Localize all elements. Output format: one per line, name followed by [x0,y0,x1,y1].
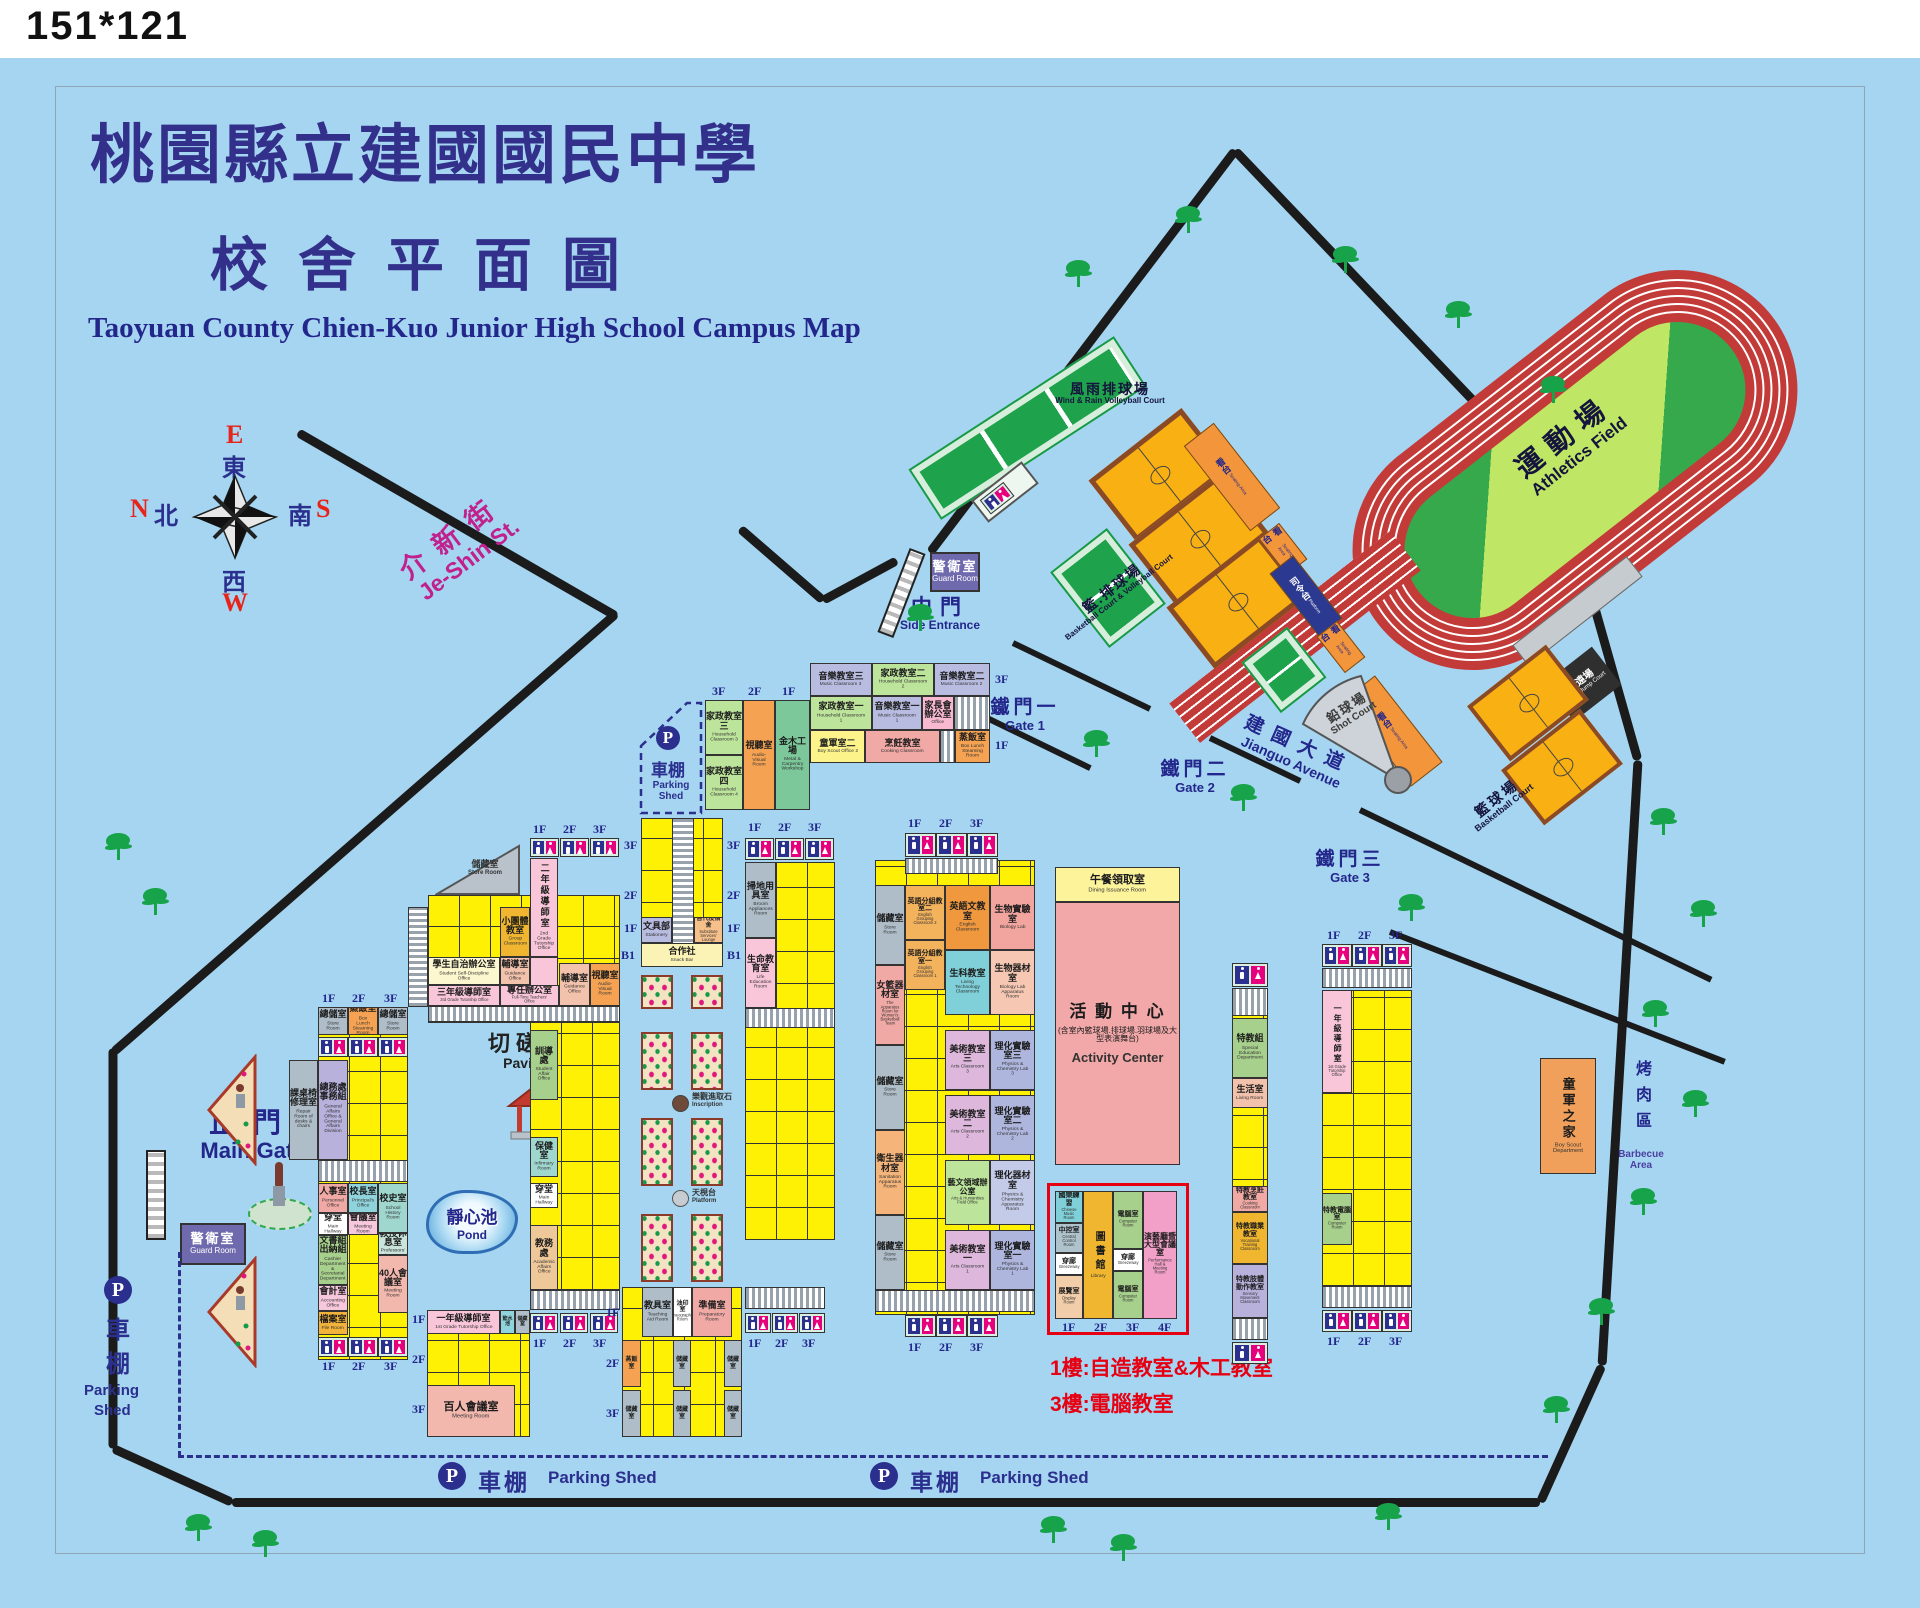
map-room: 特教組Special Education Department [1232,1018,1268,1078]
floor-label: 1F [322,1359,335,1374]
parking-label: 車棚 [651,756,685,781]
map-room: 百人會議室Meeting Room [427,1385,515,1437]
floor-label: 2F [939,816,952,831]
map-room: 檔案室File Room [318,1311,348,1335]
map-room: 儲藏室 [673,1390,691,1437]
map-room: 二年級導師室2nd Grade Tutorship Office [530,858,558,957]
map-room: 展覽室Display Room [1055,1275,1083,1319]
map-room: 英語文教室English Classroom [945,885,990,950]
stairs [1232,1318,1268,1340]
tree-icon [917,606,923,632]
garden-bed [691,1118,723,1186]
stairs [408,907,428,1007]
compass-star-icon [190,472,280,562]
map-room: 文具部Stationery [641,917,672,943]
map-room: 穿堂Main Hallway [318,1213,348,1235]
floor-label: 3F [593,1336,606,1351]
toilet-icon [378,1037,408,1057]
tree-icon [115,835,121,861]
map-room: 校史室School History Room [378,1183,408,1233]
map-room: 穿廊Breezeway [1113,1249,1143,1271]
map-room: 英語分組教室一English Grouping Classroom 1 [905,940,945,990]
map-room: 學生自治辦公室Student Self-Discipline Office [428,957,500,985]
floor-label: 3F [1389,1334,1402,1349]
garden-triangle [206,1256,258,1368]
map-room: 特教烹飪教室Cooking Classroom [1232,1186,1268,1212]
map-room: 會議室Meeting Room [348,1213,378,1235]
map-room: 理化實驗室一Physics & Chemistry Lab 1 [990,1230,1035,1290]
map-room: 國樂練習Chinese Music Room [1055,1191,1083,1223]
map-room: 理化實驗室三Physics & Chemistry Lab 3 [990,1030,1035,1090]
map-room: 家政教室一Household Classroom 1 [810,696,872,730]
map-room: 儲藏室 [724,1390,742,1437]
map-room: 電腦室Computer Room [1113,1191,1143,1249]
map-room: 總務處事務組General Affairs Office & General A… [318,1060,348,1160]
map-room: 電腦室Computer Room [1113,1271,1143,1319]
stairs [745,1008,835,1028]
title-zh: 桃園縣立建國國民中學 [90,104,970,196]
toilet-icon [799,1313,825,1333]
map-room: 生物器材室Biology Lab Apparatus Room [990,950,1035,1015]
map-room: 儲藏室 [724,1340,742,1387]
tree-icon [1342,248,1348,274]
toilet-icon [560,1313,588,1333]
toilet-icon [378,1337,408,1357]
garden-bed [641,1214,673,1282]
map-room: 教授休息室Professors' Lounge [378,1233,408,1255]
garden-bed [641,1032,673,1090]
map-room: 藝文領域辦公室Arts & Humanities Field Office [945,1160,990,1225]
map-room: 童軍室二Boy Scout Office 2 [810,730,865,763]
floor-label: 3F [808,820,821,835]
subtitle-zh: 校舍平面圖 [210,218,650,302]
map-room: 衛生器材室Sanitation Apparatus Room [875,1130,905,1215]
toilet-icon [530,838,559,857]
map-room: 校長室Principal's Office [348,1183,378,1213]
floor-label: 3F [727,838,740,853]
toilet-icon [905,833,936,857]
parking-label: 車 [106,1310,130,1345]
toilet-icon [967,833,998,857]
floor-label: 2F [1358,928,1371,943]
parking-label-en: Parking Shed [980,1468,1089,1488]
tree-icon [1692,1092,1698,1118]
map-room: 圖書館Library [1083,1191,1113,1319]
map-room: 家政教室四Household Classroom 4 [705,755,743,810]
map-room: 生活室Living Room [1232,1078,1268,1108]
guard-room-top: 警衛室Guard Room [930,552,980,592]
floor-label: 1F [606,1305,619,1320]
activity-center: 活 動 中 心 (含室內籃球場.排球場.羽球場及大型表演舞台) Activity… [1055,902,1180,1165]
tree-icon [1550,378,1556,404]
floor-label: 2F [1094,1320,1107,1335]
map-room: 穿堂Main Hallway [530,1183,558,1208]
floor-label: 3F [624,838,637,853]
tree-icon [1553,1398,1559,1424]
stairs [745,1287,825,1309]
stairs [905,858,998,874]
tree-icon [1700,902,1706,928]
stairs [428,1006,620,1022]
floor-label: 3F [970,1340,983,1355]
tree-icon [1598,1300,1604,1326]
map-room: 穿廊Breezeway [1055,1253,1083,1275]
note-line-2: 3樓:電腦教室 [1050,1388,1174,1418]
tree-icon [1240,786,1246,812]
floor-label: 4F [1158,1320,1171,1335]
dining-issuance-room: 午餐領取室Dining Issuance Room [1055,867,1180,902]
tree-icon [1075,262,1081,288]
floor-label: 1F [533,1336,546,1351]
map-room: 美術教室二Arts Classroom 2 [945,1095,990,1155]
map-room: 儲藏室Store Room [875,1045,905,1130]
map-room: 儲藏室 [673,1340,691,1387]
floor-label: B1 [621,948,635,963]
garden-bed [641,1118,673,1186]
map-room: 理化實驗室二Physics & Chemistry Lab 2 [990,1095,1035,1155]
parking-icon: P [104,1276,132,1304]
toilet-icon [1232,963,1268,987]
floor-label: 2F [412,1352,425,1367]
stairs [940,730,955,763]
map-room: 準備室Preparatory Room [692,1287,732,1337]
map-room: 理化器材室Physics & Chemistry Apparatus Room [990,1160,1035,1225]
floor-label: 3F [412,1402,425,1417]
toilet-icon [1382,944,1412,967]
map-room: 特教肢體動作教室Sensory Movement Classroom [1232,1264,1268,1318]
toilet-icon [1352,1310,1382,1332]
stairs [954,696,990,730]
road [232,1498,1540,1507]
title-en: Taoyuan County Chien-Kuo Junior High Sch… [88,312,861,345]
floor-label: 3F [384,991,397,1006]
floor-label: 2F [939,1340,952,1355]
floor-label: 2F [352,1359,365,1374]
map-room: 美術教室一Arts Classroom 1 [945,1230,990,1290]
map-room: 儲藏室Store Room [875,1215,905,1290]
map-room: 生物實驗室Biology Lab [990,885,1035,950]
map-room: 音樂教室一Music Classroom 1 [872,696,922,730]
toilet-icon [745,1313,771,1333]
map-room: 金木工場Metal & Carpentry Workshop [775,700,810,810]
map-room: 教務處Academic Affairs Office [530,1225,558,1290]
map-room: 中控室Central Control Room [1055,1223,1083,1253]
toilet-icon [348,1337,378,1357]
parking-label-en: Parking Shed [647,780,695,802]
parking-label: 車棚 [910,1463,962,1497]
map-room: 輔導室Guidance Office [559,963,590,1006]
map-room: 油印室Mimeographing Room [673,1287,692,1337]
gate-3: 鐵門三 Gate 3 [1295,850,1405,885]
floor-label: 3F [712,684,725,699]
map-room: 總儲室Store Room [318,1007,348,1035]
floor-label: 1F [995,738,1008,753]
stairs [318,1160,408,1182]
map-room: 儲藏室 [622,1390,641,1437]
map-room: 生科教室Living Technology Classroom [945,950,990,1015]
toilet-icon [1352,944,1382,967]
map-room: 家長會辦公室Office [922,696,954,730]
inscription-stone [672,1095,689,1112]
toilet-icon [318,1037,348,1057]
tree-icon [1050,1518,1056,1544]
map-room: 飲水池 [500,1310,515,1334]
map-room: 一年級導師室1st Grade Tutorship Office [1322,990,1352,1093]
boy-scout-department: 童軍之家 Boy Scout Department [1540,1058,1596,1174]
statue-icon [273,1186,285,1206]
map-room: 教具室Teaching Aid Room [642,1287,673,1337]
tree-icon [195,1516,201,1542]
tree-icon [1120,1536,1126,1562]
map-room: 訓導處Student Affair Office [530,1030,558,1100]
garden-bed [641,975,673,1009]
floor-label: 2F [563,822,576,837]
map-room: 蒸飯室Box Lunch Steaming Room [348,1007,378,1035]
floor-label: 2F [352,991,365,1006]
map-room: 小團體教室Group Classroom [500,907,530,957]
map-room: 一年級導師室1st Grade Tutorship Office [427,1310,500,1334]
floor-label: 2F [727,888,740,903]
map-room: 演藝廳暨大型會議室Performance Hall & Meeting Room [1143,1191,1177,1319]
floor-label: 3F [1126,1320,1139,1335]
map-room: 保健室Infirmary Room [530,1137,558,1177]
parking-icon: P [656,726,680,750]
toilet-icon [775,838,804,860]
garden-bed [691,1214,723,1282]
parking-label-en: Shed [94,1402,131,1419]
tree-icon [1640,1190,1646,1216]
floor-label: 2F [775,1336,788,1351]
map-room: 會計室Accounting Office [318,1285,348,1311]
map-room: 特教職業教室Vocational Training Classroom [1232,1212,1268,1264]
floor-label: 1F [748,820,761,835]
map-room: 文書組出納組Cashier Department & Secretarial D… [318,1235,348,1285]
floor-label: 1F [908,1340,921,1355]
parking-boundary [178,1252,181,1457]
map-room: 儲藏室Store Room [875,885,905,965]
toilet-icon [905,1315,936,1337]
floor-label: 3F [384,1359,397,1374]
tree-icon [1185,208,1191,234]
campus-map: 151*121 桃園縣立建國國民中學 校舍平面圖 Taoyuan County … [0,0,1920,1608]
map-room: 視聽室Audio-Visual Room [590,963,620,1006]
toilet-icon [936,833,967,857]
parking-label: 棚 [106,1344,130,1379]
platform-circle [672,1190,689,1207]
floor-label: 3F [802,1336,815,1351]
map-room: 烹飪教室Cooking Classroom [865,730,940,763]
floor-label: 1F [908,816,921,831]
main-gate-bar [146,1150,166,1240]
map-room: 掃地用具室Broom Appliances Room [745,862,776,938]
tree-icon [262,1532,268,1558]
tree-icon [152,890,158,916]
map-room: 替代役宿舍Substitute Services' Lounge [694,917,723,943]
floor-label: 3F [970,816,983,831]
map-room: 40人會議室Meeting Room [378,1255,408,1313]
map-room: 家政教室三Household Classroom 3 [705,700,743,755]
floor-label: 2F [624,888,637,903]
toilet-icon [1322,944,1352,967]
map-room: 蒸飯室Box Lunch Steaming Room [955,730,990,763]
toilet-icon [936,1315,967,1337]
map-room: 美術教室三Arts Classroom 3 [945,1030,990,1090]
floor-label: 3F [606,1406,619,1421]
floor-label: 3F [995,672,1008,687]
toilet-icon [348,1037,378,1057]
stairs [1322,968,1412,988]
floor-label: 3F [1389,928,1402,943]
map-room: 合作社Snack Bar [641,943,723,967]
map-room: 音樂教室三Music Classroom 3 [810,663,872,696]
floor-label: 1F [1327,1334,1340,1349]
map-room: 輔導室Guidance Office [500,957,530,985]
stairs [875,1290,1035,1312]
map-room: 三年級導師室3rd Grade Tutorship Office [428,985,500,1006]
map-room: 人事室Personnel Office [318,1183,348,1213]
windrain-label: 風雨排球場 Wind & Rain Volleyball Court [1040,382,1180,406]
garden-bed [691,1032,723,1090]
floor-label: 2F [995,704,1008,719]
toilet-icon [967,1315,998,1337]
floor-label: 1F [624,921,637,936]
map-room: 音樂教室二Music Classroom 2 [934,663,990,696]
parking-label-en: Parking [84,1382,139,1399]
floor-label: 1F [748,1336,761,1351]
floor-label: 1F [1327,928,1340,943]
store-triangle-label: 儲藏室Store Room [455,860,515,876]
toilet-icon [590,838,619,857]
map-room: 女籃器材室The Apparatus Room for Women's Bask… [875,965,905,1045]
floor-label: 2F [778,820,791,835]
toilet-icon [560,838,589,857]
map-room: 英語分組教室二English Grouping Classroom 2 [905,885,945,940]
floor-label: 1F [412,1312,425,1327]
map-room: 蒸飯室 [622,1340,641,1387]
parking-label-en: Parking Shed [548,1468,657,1488]
toilet-icon [745,838,774,860]
stairs [1232,988,1268,1016]
map-room: 家政教室二Household Classroom 2 [872,663,934,696]
tree-icon [1385,1505,1391,1531]
map-room: 生命教育室Life Education Room [745,938,776,1008]
floor-label: 1F [1062,1320,1075,1335]
map-room: 專任辦公室Full-Time Teachers' Office [500,985,559,1006]
gate-side: 中門 Side Entrance [880,596,1000,632]
statue-icon [275,1162,283,1186]
map-room: 視聽室Audio-Visual Room [743,700,775,810]
floor-label: 1F [322,991,335,1006]
toilet-icon [805,838,834,860]
toilet-icon [1322,1310,1352,1332]
floor-label: 2F [748,684,761,699]
tree-icon [1093,732,1099,758]
map-room: 總儲室Store Room [378,1007,408,1035]
floor-label: 1F [727,921,740,936]
tree-icon [1652,1002,1658,1028]
floor-label: 1F [782,684,795,699]
floor-label: 2F [1358,1334,1371,1349]
compass: E 東 N 北 南 S 西 W [130,420,340,610]
parking-boundary [178,1455,1548,1458]
garden-triangle [206,1054,258,1166]
garden-bed [691,975,723,1009]
parking-icon: P [870,1462,898,1490]
floor-label: 2F [563,1336,576,1351]
map-room: 特教電腦室Computer Room [1322,1193,1352,1245]
parking-icon: P [438,1462,466,1490]
floor-label: 1F [533,822,546,837]
floor-label: 3F [593,822,606,837]
parking-label: 車棚 [478,1463,530,1497]
map-room: 課桌椅修理室Repair Room of desks & chairs [289,1060,318,1160]
tree-icon [1408,896,1414,922]
bbq-area-label: 烤肉區 Barbecue Area [1606,1060,1676,1171]
image-size-label: 151*121 [26,4,189,49]
platform-label: 天梘台Platform [692,1189,752,1204]
stairs [1322,1286,1412,1308]
map-room: 儲藏室 [515,1310,530,1334]
toilet-icon [318,1337,348,1357]
toilet-icon [1382,1310,1412,1332]
tree-icon [1660,810,1666,836]
tree-icon [1455,303,1461,329]
floor-label: 2F [606,1356,619,1371]
toilet-icon [530,1313,558,1333]
toilet-icon [1232,1342,1268,1364]
floor-label: B1 [727,948,741,963]
toilet-icon [772,1313,798,1333]
